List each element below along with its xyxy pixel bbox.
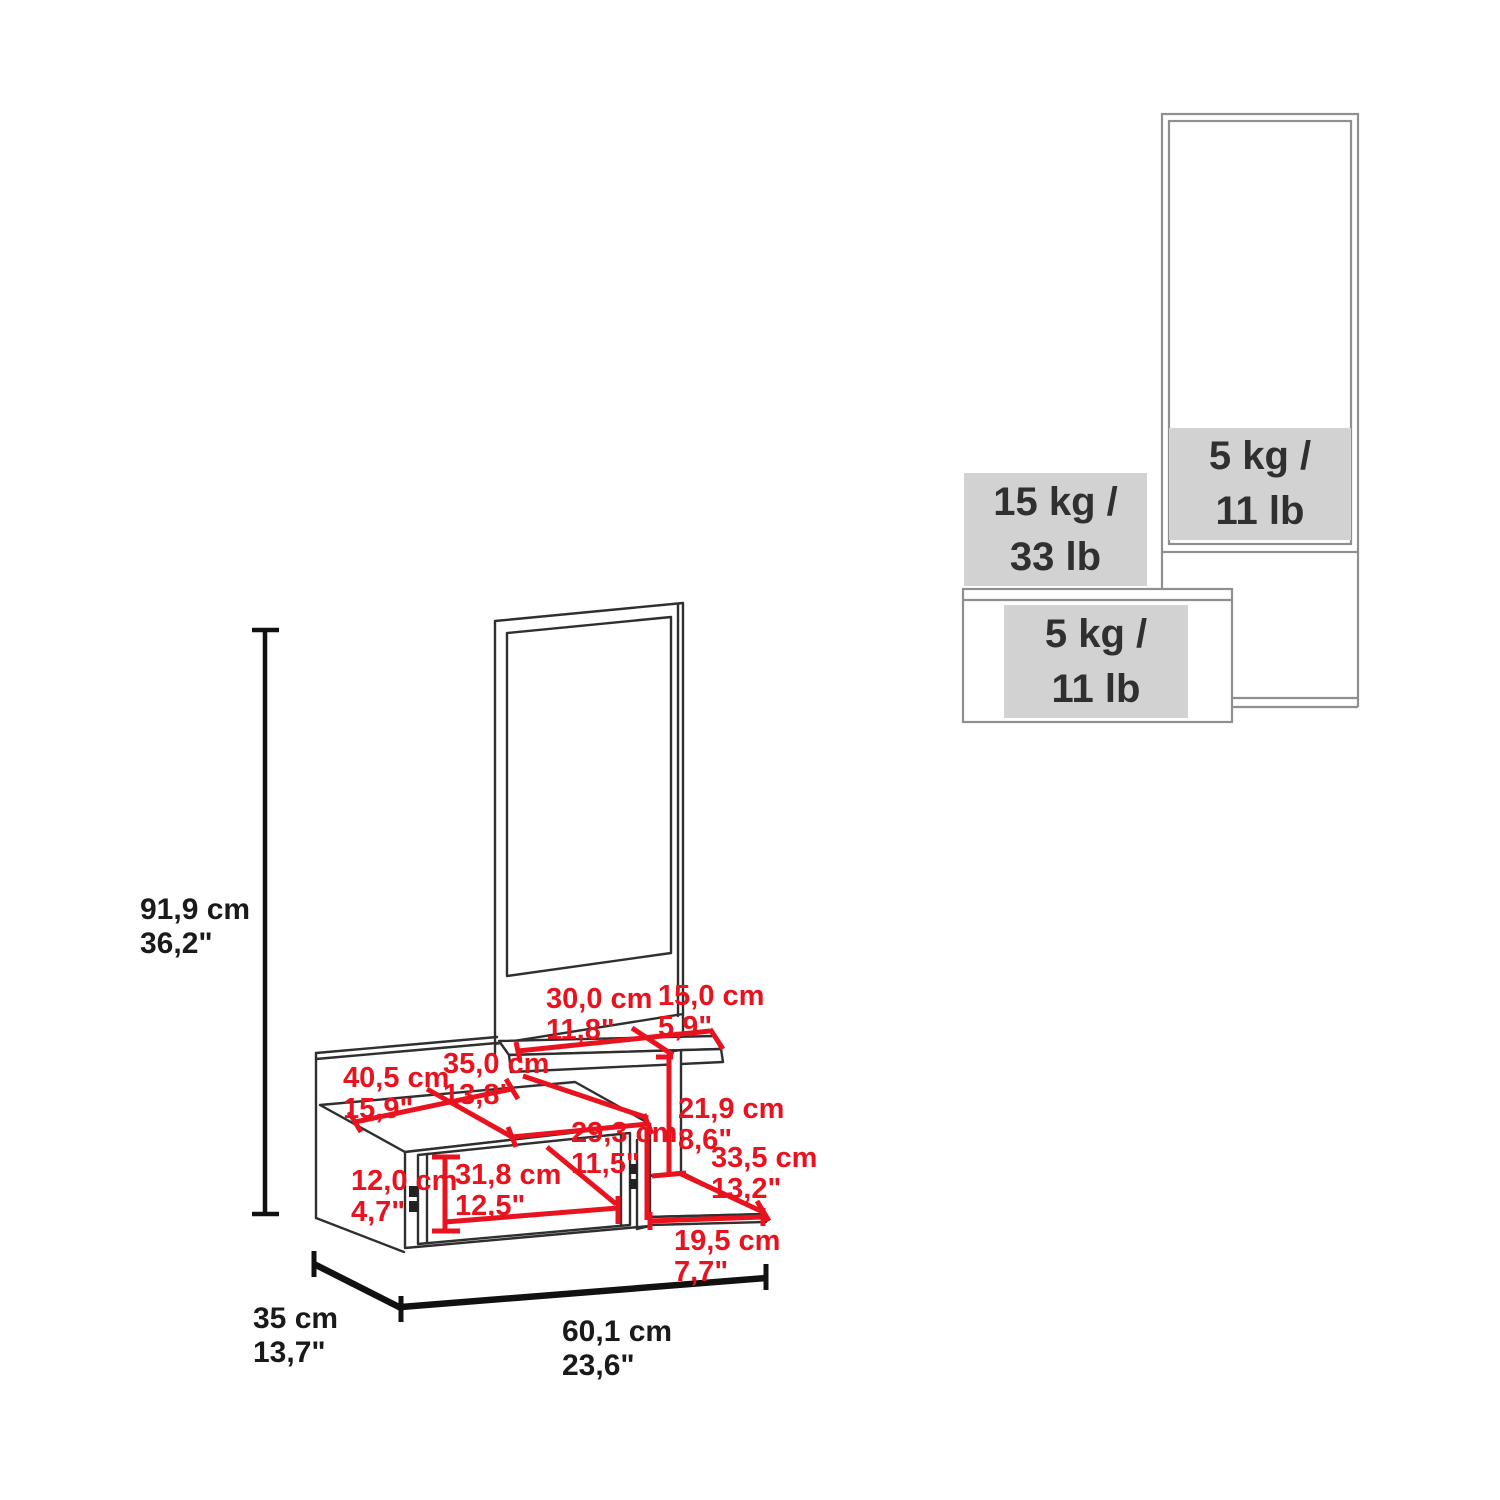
capacity-line: 5 kg / (1045, 607, 1147, 662)
height-dimension-line (252, 630, 279, 1214)
top-width-dimension-label: 40,5 cm 15,9" (343, 1063, 449, 1125)
product-dimension-sheet: 5 kg / 11 lb 15 kg / 33 lb 5 kg / 11 lb … (0, 0, 1500, 1500)
depth-dimension-label: 35 cm 13,7" (253, 1302, 338, 1370)
drawer-capacity-badge: 5 kg / 11 lb (1004, 605, 1188, 718)
height-dimension-label: 91,9 cm 36,2" (140, 893, 250, 961)
lower-shelf-depth-dimension-label: 33,5 cm 13,2" (711, 1143, 817, 1205)
hinge-icon (629, 1179, 637, 1189)
capacity-line: 5 kg / (1209, 429, 1311, 484)
drawer-width-dimension-label: 31,8 cm 12,5" (455, 1160, 561, 1222)
capacity-line: 11 lb (1216, 484, 1305, 539)
capacity-line: 11 lb (1052, 662, 1141, 717)
capacity-line: 15 kg / (993, 475, 1118, 530)
width-dimension-label: 60,1 cm 23,6" (562, 1315, 672, 1383)
lower-shelf-width-dimension-label: 19,5 cm 7,7" (674, 1226, 780, 1288)
mirror-capacity-badge: 5 kg / 11 lb (1169, 428, 1351, 540)
shelf-left-dimension-label: 30,0 cm 11,8" (546, 984, 652, 1046)
capacity-line: 33 lb (1010, 530, 1101, 585)
shelf-capacity-badge: 15 kg / 33 lb (964, 473, 1147, 586)
drawer-height-dimension-label: 12,0 cm 4,7" (351, 1166, 457, 1228)
top-depth-dimension-label: 35,0 cm 13,8" (443, 1049, 549, 1111)
niche-width-dimension-label: 29,3 cm 11,5" (571, 1118, 677, 1180)
shelf-right-dimension-label: 15,0 cm 5,9" (658, 981, 764, 1043)
